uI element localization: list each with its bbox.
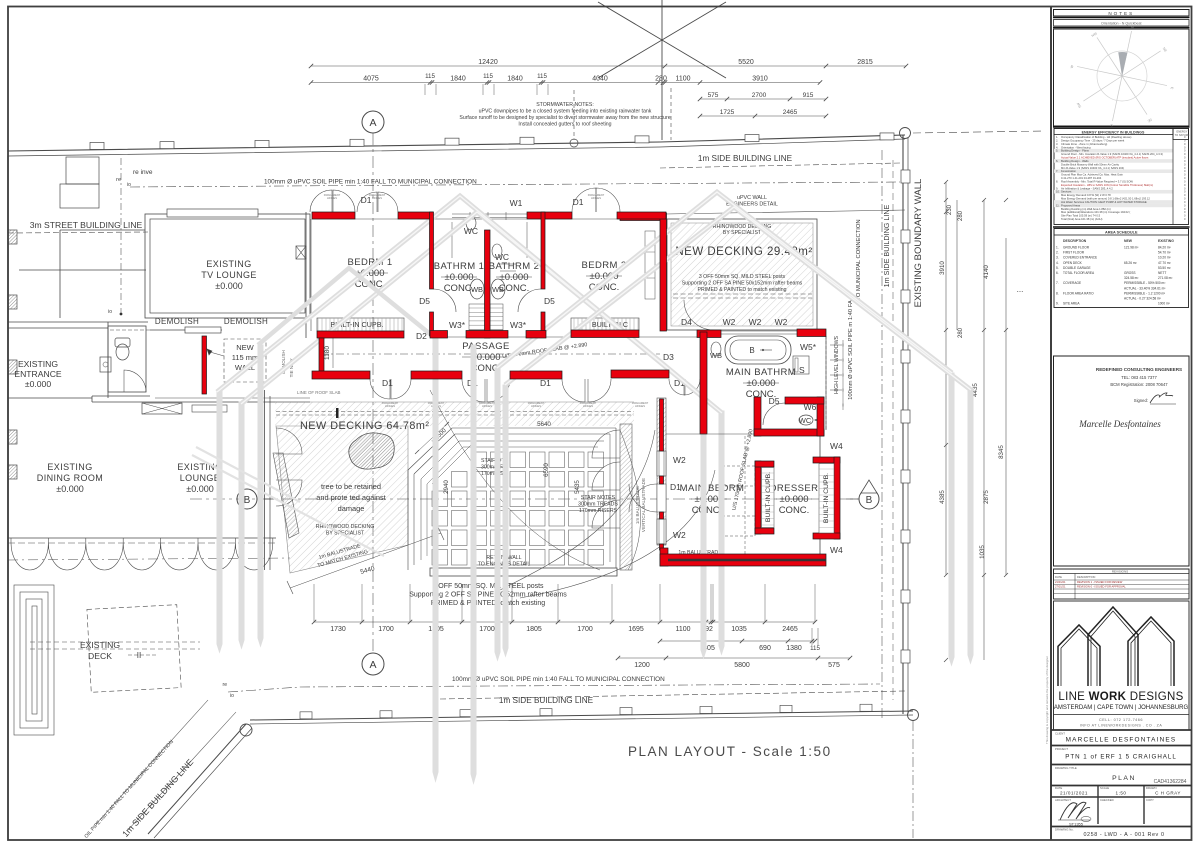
svg-text:B: B <box>244 495 251 506</box>
svg-text:Building Dwelling: Building Dwelling (m) Wall Area 1.882 (m… <box>1061 207 1111 211</box>
svg-text:DRAWN: DRAWN <box>1146 786 1156 790</box>
svg-text:ENERGY EFFICIENCY IN BUILDINGS: ENERGY EFFICIENCY IN BUILDINGS <box>1082 130 1145 134</box>
svg-text:±0.000: ±0.000 <box>747 378 776 389</box>
svg-text:W4: W4 <box>830 441 843 451</box>
svg-text:DATE: DATE <box>1055 786 1062 790</box>
svg-text:MARCELLE DESFONTAINES: MARCELLE DESFONTAINES <box>1066 737 1177 744</box>
svg-text:DESCRIPTION: DESCRIPTION <box>1077 575 1095 579</box>
svg-text:EXISTING: EXISTING <box>18 359 58 369</box>
svg-text:Proposed Areas: Proposed Areas <box>1061 203 1081 207</box>
svg-text:5520: 5520 <box>738 59 754 66</box>
svg-text:9.: 9. <box>1056 186 1058 190</box>
svg-text:2.: 2. <box>1056 138 1058 142</box>
svg-text:PASSAGE: PASSAGE <box>462 341 510 352</box>
svg-text:...: ... <box>1017 285 1024 294</box>
svg-text:0258 - LWD - A - 001 Rev 0: 0258 - LWD - A - 001 Rev 0 <box>1083 832 1164 838</box>
svg-text:300mm TREADS: 300mm TREADS <box>578 502 618 508</box>
svg-text:FIRST FLOOR: FIRST FLOOR <box>1063 251 1085 255</box>
svg-text:6590: 6590 <box>543 463 550 477</box>
svg-text:0.41-270 1.41-201: 0.41-270 1.41-201 04-287 01-204 <box>1061 176 1102 180</box>
svg-text:3 OFF 50mm SQ. M L STEEL post: 3 OFF 50mm SQ. M L STEEL posts <box>432 583 544 590</box>
svg-text:TEL: 083 415 7377: TEL: 083 415 7377 <box>1121 375 1157 380</box>
svg-text:EXISTING: EXISTING <box>80 640 120 650</box>
svg-text:re: re <box>223 682 228 688</box>
svg-text:ARCHITECT: ARCHITECT <box>1055 798 1071 802</box>
svg-text:324.58 m²: 324.58 m² <box>1124 276 1138 280</box>
svg-text:3m STREET BUILDING LINE: 3m STREET BUILDING LINE <box>30 220 143 230</box>
svg-text:HINGES: HINGES <box>385 404 395 408</box>
svg-text:W3*: W3* <box>510 320 527 330</box>
svg-text:COVERED ENTRANCE: COVERED ENTRANCE <box>1063 256 1097 260</box>
svg-text:575: 575 <box>708 92 719 99</box>
svg-text:COPY: COPY <box>1146 798 1154 802</box>
svg-text:LINE WORK DESIGNS: LINE WORK DESIGNS <box>1058 691 1183 703</box>
svg-text:Occupancy Classification of Bu: Occupancy Classification of Building - H… <box>1061 135 1131 139</box>
svg-text:GROUND FLOOR: GROUND FLOOR <box>1063 246 1090 250</box>
svg-text:ENERGY: ENERGY <box>1177 130 1188 134</box>
svg-text:Ground Floor - Min. Insulation: Ground Floor - Min. Insulation R-Value 1… <box>1061 152 1163 156</box>
svg-text:REVISIONS: REVISIONS <box>1112 570 1128 574</box>
svg-text:CLIENT: CLIENT <box>1055 732 1065 736</box>
svg-text:Actual Value 2.1 ACHIEVED (R/S: Actual Value 2.1 ACHIEVED (R/S OCTOBER) … <box>1061 156 1149 160</box>
svg-text:STAIR NOTES: STAIR NOTES <box>581 495 616 501</box>
svg-text:DRESSER: DRESSER <box>770 483 819 494</box>
svg-text:9.: 9. <box>1056 302 1059 306</box>
svg-text:This drawing is copyright and: This drawing is copyright and remains th… <box>1045 656 1049 744</box>
svg-text:12420: 12420 <box>478 59 498 66</box>
svg-text:1100: 1100 <box>675 626 690 633</box>
svg-text:1m SIDE BUILDING LINE: 1m SIDE BUILDING LINE <box>499 696 594 705</box>
svg-text:REVISION 0 - ISSUED FOR APPROV: REVISION 0 - ISSUED FOR APPROVAL <box>1077 585 1126 589</box>
svg-text:NETT: NETT <box>1158 271 1166 275</box>
svg-text:3.: 3. <box>1056 256 1059 260</box>
svg-text:±0.000: ±0.000 <box>25 379 51 389</box>
svg-text:2815: 2815 <box>857 59 873 66</box>
svg-text:Double Brick Masonry Wall with: Double Brick Masonry Wall with 50mm Air … <box>1061 162 1120 166</box>
svg-text:±0.000: ±0.000 <box>780 494 809 505</box>
svg-text:WC: WC <box>464 226 478 236</box>
svg-text:100mm Ø uPVC SOIL PIPE min 1:4: 100mm Ø uPVC SOIL PIPE min 1:40 FALL TO … <box>452 676 665 683</box>
svg-text:D5: D5 <box>419 296 430 306</box>
svg-text:TOTAL FLOOR AREA: TOTAL FLOOR AREA <box>1063 271 1095 275</box>
svg-text:TV LOUNGE: TV LOUNGE <box>201 270 257 280</box>
svg-text:CHECKED: CHECKED <box>1100 798 1114 802</box>
svg-text:ACTUAL - 0.27 324.58 m²: ACTUAL - 0.27 324.58 m² <box>1124 297 1161 301</box>
svg-text:1035: 1035 <box>731 626 747 633</box>
svg-text:3910: 3910 <box>939 261 946 275</box>
svg-text:Air Infiltration & Leakage - S: Air Infiltration & Leakage - SANS 283_4.… <box>1061 186 1113 190</box>
svg-text:WC: WC <box>495 252 509 262</box>
svg-text:DOUBLE GARAGE: DOUBLE GARAGE <box>1063 266 1091 270</box>
svg-text:4040: 4040 <box>592 75 608 82</box>
svg-text:4075: 4075 <box>363 75 379 82</box>
svg-text:FLOOR AREA RATIO: FLOOR AREA RATIO <box>1063 291 1094 295</box>
svg-text:W2: W2 <box>673 455 686 465</box>
svg-text:575: 575 <box>828 662 840 669</box>
svg-text:115: 115 <box>810 645 820 652</box>
svg-text:B: B <box>866 495 873 506</box>
svg-text:PRIMED & PAINTED to match exis: PRIMED & PAINTED to match existing <box>698 287 787 293</box>
svg-text:1180: 1180 <box>324 346 331 360</box>
svg-text:TO NATURE: TO NATURE <box>1175 133 1190 137</box>
svg-text:10.20 m²: 10.20 m² <box>1158 256 1171 260</box>
svg-text:A: A <box>369 659 376 671</box>
svg-text:io: io <box>230 693 234 699</box>
svg-text:Services: Services <box>1061 190 1072 194</box>
svg-text:7.: 7. <box>1056 281 1059 285</box>
svg-text:Min R-Value 1.9 (SANS 10400 XA: Min R-Value 1.9 (SANS 10400 XA_4.4.1) SA… <box>1061 166 1124 170</box>
svg-text:W2: W2 <box>673 530 686 540</box>
svg-text:100mm Ø uPVC SOIL PIPE min 1:4: 100mm Ø uPVC SOIL PIPE min 1:40 FALL TO … <box>264 179 477 186</box>
svg-text:±0.000: ±0.000 <box>215 281 242 291</box>
svg-text:DRAWING TITLE: DRAWING TITLE <box>1055 766 1077 770</box>
svg-text:65.26 m²: 65.26 m² <box>1124 261 1137 265</box>
svg-text:re inve: re inve <box>133 169 153 176</box>
svg-text:4.: 4. <box>1056 145 1058 149</box>
svg-text:STORMWATER NOTES:: STORMWATER NOTES: <box>536 102 594 108</box>
svg-text:CAD41362284: CAD41362284 <box>1154 779 1187 785</box>
svg-text:AMSTERDAM | CAPE TOWN | JOHANN: AMSTERDAM | CAPE TOWN | JOHANNESBURG <box>1054 705 1189 711</box>
svg-text:D5: D5 <box>544 296 555 306</box>
svg-text:Orientation - West facing: Orientation - West facing <box>1061 145 1091 149</box>
svg-text:4.: 4. <box>1056 261 1059 265</box>
svg-text:10.: 10. <box>1056 190 1060 194</box>
svg-text:1700: 1700 <box>479 626 495 633</box>
svg-text:EXISTING BOUNDARY WALL: EXISTING BOUNDARY WALL <box>913 179 924 308</box>
svg-text:NEW: NEW <box>1124 239 1133 243</box>
svg-text:REVISION 1 - ISSUED FOR REVIEW: REVISION 1 - ISSUED FOR REVIEW <box>1077 580 1123 584</box>
svg-text:5435: 5435 <box>574 480 581 494</box>
svg-text:D1: D1 <box>670 482 681 492</box>
svg-text:21/01/2021: 21/01/2021 <box>1060 791 1088 796</box>
svg-text:6.: 6. <box>1056 159 1058 163</box>
svg-text:W5*: W5* <box>800 342 817 352</box>
svg-text:2940: 2940 <box>443 480 450 494</box>
svg-text:HINGES: HINGES <box>635 404 645 408</box>
svg-text:BUILT-IN CUPB.: BUILT-IN CUPB. <box>765 472 772 522</box>
svg-text:Marcelle Desfontaines: Marcelle Desfontaines <box>1078 419 1161 429</box>
svg-text:100mm Ø uPVC SOIL PIPE m 1:4: 100mm Ø uPVC SOIL PIPE m 1:40 FA <box>848 300 854 400</box>
svg-text:W3*: W3* <box>449 320 466 330</box>
svg-text:io: io <box>108 309 112 315</box>
svg-text:8345: 8345 <box>998 445 1005 459</box>
svg-text:47.70 m²: 47.70 m² <box>1158 261 1171 265</box>
svg-text:280: 280 <box>958 210 964 221</box>
svg-text:A: A <box>369 117 376 129</box>
svg-text:121.98 m²: 121.98 m² <box>1124 246 1138 250</box>
svg-text:3910: 3910 <box>752 75 768 82</box>
svg-text:±0.000: ±0.000 <box>56 484 83 494</box>
svg-text:D1: D1 <box>573 197 584 207</box>
svg-text:11.: 11. <box>1056 203 1060 207</box>
svg-text:tree to be retained: tree to be retained <box>321 482 381 491</box>
svg-text:HINGES: HINGES <box>591 196 601 200</box>
svg-text:Building Design - Walls: Building Design - Walls <box>1061 159 1089 163</box>
svg-text:Max Energy Demand (with per an: Max Energy Demand (with per annum) 0.8 1… <box>1061 197 1150 201</box>
svg-text:1200: 1200 <box>634 662 650 669</box>
svg-text:BATHRM 2: BATHRM 2 <box>489 261 540 272</box>
svg-text:PERMISSIBLE - 50% 500 m²: PERMISSIBLE - 50% 500 m² <box>1124 281 1165 285</box>
svg-text:271.08 m²: 271.08 m² <box>1158 276 1172 280</box>
svg-text:1000 m²: 1000 m² <box>1158 302 1170 306</box>
svg-text:uPVC downpipes to be a closed: uPVC downpipes to be a closed system fee… <box>479 109 652 115</box>
svg-text:690: 690 <box>759 645 771 652</box>
svg-text:DATE: DATE <box>1055 575 1062 579</box>
svg-text:SCALE: SCALE <box>1100 786 1109 790</box>
svg-text:PRIMED & PAINTED to atch ex: PRIMED & PAINTED to atch existing <box>431 600 545 607</box>
svg-text:W2: W2 <box>723 317 736 327</box>
svg-text:WC: WC <box>799 416 812 425</box>
svg-text:1700: 1700 <box>378 626 394 633</box>
svg-text:BATHRM 1: BATHRM 1 <box>434 261 485 272</box>
svg-text:Surface runoff to be designed: Surface runoff to be designed by special… <box>459 115 670 121</box>
svg-text:1m SIDE BUILDING LINE: 1m SIDE BUILDING LINE <box>882 204 891 287</box>
svg-text:DESCRIPTION: DESCRIPTION <box>1063 239 1087 243</box>
svg-text:Building Design - Plans: Building Design - Plans <box>1061 149 1089 153</box>
svg-text:CONC.: CONC. <box>779 505 810 516</box>
svg-text:1725: 1725 <box>720 109 735 116</box>
svg-text:LINE OF ROOF SLAB: LINE OF ROOF SLAB <box>297 390 340 395</box>
svg-text:1100: 1100 <box>675 75 690 82</box>
svg-text:Total (final) Area: Total (final) Area 101.38 (m) (ACH) <box>1061 217 1102 221</box>
svg-text:27/01/21: 27/01/21 <box>1055 585 1066 589</box>
svg-text:6.: 6. <box>1056 271 1059 275</box>
svg-text:Climate Zone - Zone 1 (Johanne: Climate Zone - Zone 1 (Johannesburg) <box>1061 142 1107 146</box>
svg-text:HINGES: HINGES <box>327 196 337 200</box>
svg-text:1.: 1. <box>1056 246 1059 250</box>
svg-text:ENTRANCE: ENTRANCE <box>14 369 62 379</box>
svg-text:115: 115 <box>483 73 493 80</box>
svg-text:±0.000: ±0.000 <box>186 484 213 494</box>
svg-text:PTN 1 of ERF 1 5 CRAIGHALL: PTN 1 of ERF 1 5 CRAIGHALL <box>1065 754 1177 761</box>
svg-text:Supporting 2 OFF SA PINE 50x15: Supporting 2 OFF SA PINE 50x152mm rafter… <box>682 281 803 287</box>
svg-text:PLAN: PLAN <box>1112 775 1136 782</box>
svg-text:Signed:: Signed: <box>1134 398 1148 403</box>
svg-text:7.: 7. <box>1056 169 1058 173</box>
svg-text:STAIR OT: STAIR OT <box>481 458 505 464</box>
svg-text:AREA SCHEDULE: AREA SCHEDULE <box>1105 231 1138 235</box>
svg-text:8.: 8. <box>1056 291 1059 295</box>
svg-text:W4: W4 <box>830 545 843 555</box>
svg-text:1.: 1. <box>1056 135 1058 139</box>
svg-text:1700: 1700 <box>577 626 593 633</box>
svg-text:1035: 1035 <box>979 545 986 559</box>
svg-text:4385: 4385 <box>939 490 946 504</box>
svg-text:Orientation - N Quickbeat: Orientation - N Quickbeat <box>1101 22 1142 26</box>
svg-text:DEMOLISH: DEMOLISH <box>155 317 199 326</box>
svg-text:HINGES: HINGES <box>482 404 492 408</box>
svg-text:170mm RISERS: 170mm RISERS <box>579 508 618 514</box>
svg-text:8.: 8. <box>1056 179 1058 183</box>
svg-text:EXISTING: EXISTING <box>206 259 251 269</box>
svg-text:2465: 2465 <box>783 109 798 116</box>
svg-text:VERTICAL BALUSTRADE: VERTICAL BALUSTRADE <box>641 478 646 532</box>
svg-text:REDEFINED CONSULTING ENGINEERS: REDEFINED CONSULTING ENGINEERS <box>1096 367 1182 372</box>
svg-text:DEMOLISH: DEMOLISH <box>224 317 268 326</box>
svg-text:280: 280 <box>958 327 964 338</box>
svg-text:1:50: 1:50 <box>1116 791 1127 796</box>
svg-text:TO MUNICIPAL CONNECTION: TO MUNICIPAL CONNECTION <box>856 219 862 300</box>
svg-text:HINGES: HINGES <box>372 196 382 200</box>
svg-text:MAIN BATHRM: MAIN BATHRM <box>726 367 796 378</box>
svg-text:280: 280 <box>655 75 667 82</box>
svg-text:Roof Assembly - Min. Total R-V: Roof Assembly - Min. Total R-Value Requi… <box>1061 179 1133 183</box>
svg-text:5800: 5800 <box>734 662 750 669</box>
svg-text:1m SIDE BUILDING LINE: 1m SIDE BUILDING LINE <box>698 154 793 163</box>
svg-text:BCM Registration: 2008 70647: BCM Registration: 2008 70647 <box>1110 382 1168 387</box>
svg-text:5.: 5. <box>1056 149 1058 153</box>
svg-text:DRAWING No.: DRAWING No. <box>1055 828 1074 832</box>
svg-text:NEW DECKING 64.78m²: NEW DECKING 64.78m² <box>300 420 430 432</box>
svg-text:II: II <box>137 651 141 660</box>
svg-text:io: io <box>127 182 131 188</box>
svg-text:5.: 5. <box>1056 266 1059 270</box>
svg-text:EXISTING: EXISTING <box>47 462 92 472</box>
svg-text:1380: 1380 <box>786 645 802 652</box>
svg-text:DINING ROOM: DINING ROOM <box>37 473 103 483</box>
svg-text:230: 230 <box>947 204 953 215</box>
svg-text:NOTES: NOTES <box>1108 11 1134 16</box>
svg-text:2700: 2700 <box>752 92 767 99</box>
svg-text:D5: D5 <box>769 396 780 406</box>
svg-text:S: S <box>799 365 805 375</box>
svg-text:Site Plan Total: Site Plan Total 105.59 (m) 74 0.5 <box>1061 214 1101 218</box>
svg-text:OPEN DECK: OPEN DECK <box>1063 261 1083 265</box>
svg-text:PLAN LAYOUT - Scale 1:50: PLAN LAYOUT - Scale 1:50 <box>628 744 832 759</box>
svg-text:HIGH LEVEL WINDOWS: HIGH LEVEL WINDOWS <box>834 335 840 394</box>
svg-text:2465: 2465 <box>782 626 798 633</box>
svg-text:2875: 2875 <box>983 490 990 504</box>
svg-text:W1: W1 <box>510 198 523 208</box>
svg-text:21/01/21: 21/01/21 <box>1055 580 1066 584</box>
svg-text:COVERAGE: COVERAGE <box>1063 281 1081 285</box>
svg-text:re: re <box>116 177 121 183</box>
svg-text:1805: 1805 <box>526 626 542 633</box>
svg-text:Fenestration: Fenestration <box>1061 169 1076 173</box>
svg-text:BY SPECIALIST: BY SPECIALIST <box>723 230 762 236</box>
svg-text:Max (additional)/Alterations: Max (additional)/Alterations 101.38 (m) … <box>1061 210 1130 214</box>
svg-text:NEW: NEW <box>236 343 254 352</box>
svg-text:HINGES: HINGES <box>583 404 593 408</box>
svg-text:±0.000: ±0.000 <box>500 272 529 283</box>
svg-text:WB: WB <box>492 285 504 294</box>
svg-text:PERMISSIBLE - 1.2 1200 m²: PERMISSIBLE - 1.2 1200 m² <box>1124 291 1165 295</box>
svg-text:84.20 m²: 84.20 m² <box>1158 246 1171 250</box>
svg-text:2.: 2. <box>1056 251 1059 255</box>
svg-text:3 OFF 50mm SQ. MILD STEEL post: 3 OFF 50mm SQ. MILD STEEL posts <box>699 274 786 280</box>
svg-text:915: 915 <box>803 92 814 99</box>
svg-text:Design Occupancy Time - 25 day: Design Occupancy Time - 25 days / 7 Days… <box>1061 138 1125 142</box>
svg-text:WB: WB <box>471 285 483 294</box>
svg-text:SITE AREA: SITE AREA <box>1063 302 1080 306</box>
svg-text:and prote ted against: and prote ted against <box>316 493 385 502</box>
svg-text:115: 115 <box>537 73 547 80</box>
svg-text:MAIN BEDRM: MAIN BEDRM <box>680 483 745 494</box>
svg-text:B: B <box>749 346 754 355</box>
svg-text:D1: D1 <box>382 378 393 388</box>
svg-text:D3: D3 <box>663 352 674 362</box>
svg-text:DECK: DECK <box>88 651 112 661</box>
svg-text:4140: 4140 <box>983 265 990 279</box>
svg-text:±0.000: ±0.000 <box>445 272 474 283</box>
svg-text:Hot Water Services: Hot Water Services CAUTION: HEAT PUMP & … <box>1061 200 1147 204</box>
svg-text:1695: 1695 <box>628 626 644 633</box>
svg-text:uPVC WALL: uPVC WALL <box>737 195 767 201</box>
svg-text:GROSS: GROSS <box>1124 271 1136 275</box>
svg-text:C H GRAY: C H GRAY <box>1155 791 1181 796</box>
svg-text:1840: 1840 <box>450 75 466 82</box>
svg-text:Install concealed gutters to r: Install concealed gutters to roof sheeti… <box>518 122 611 128</box>
svg-text:1840: 1840 <box>507 75 523 82</box>
svg-text:Expected Insulation - LBS to S: Expected Insulation - LBS to SANS 10N (C… <box>1061 183 1153 187</box>
svg-text:W2: W2 <box>775 317 788 327</box>
svg-text:54.70 m²: 54.70 m² <box>1158 251 1171 255</box>
svg-text:D1: D1 <box>540 378 551 388</box>
svg-text:5640: 5640 <box>537 421 551 428</box>
svg-text:PROJECT: PROJECT <box>1055 747 1068 751</box>
svg-text:1730: 1730 <box>330 626 346 633</box>
svg-text:CONC.: CONC. <box>692 505 723 516</box>
svg-text:LOUNGE: LOUNGE <box>180 473 220 483</box>
svg-text:BUILT-IN CUPB.: BUILT-IN CUPB. <box>823 473 830 523</box>
svg-text:Max Energy Demand: Max Energy Demand 0.8 W (W) 2 W 0.78 <box>1061 193 1111 197</box>
svg-text:3.: 3. <box>1056 142 1058 146</box>
svg-text:damage: damage <box>338 504 365 513</box>
svg-text:Ground Plan Max Ca.: Ground Plan Max Ca. Achieved Ca. Max. He… <box>1061 173 1123 177</box>
svg-text:ACTUAL - 33.40% 334.61 m²: ACTUAL - 33.40% 334.61 m² <box>1124 286 1165 290</box>
svg-text:EXISTING: EXISTING <box>1158 239 1174 243</box>
svg-text:53.50 m²: 53.50 m² <box>1158 266 1171 270</box>
svg-text:115: 115 <box>425 73 435 80</box>
svg-text:INFO AT LINEWORKDESIGNS . CO: INFO AT LINEWORKDESIGNS . CO . ZA <box>1080 724 1163 728</box>
svg-text:CELL: 072 172-7466: CELL: 072 172-7466 <box>1099 718 1143 722</box>
svg-text:W2: W2 <box>749 317 762 327</box>
svg-text:HINGES: HINGES <box>531 404 541 408</box>
